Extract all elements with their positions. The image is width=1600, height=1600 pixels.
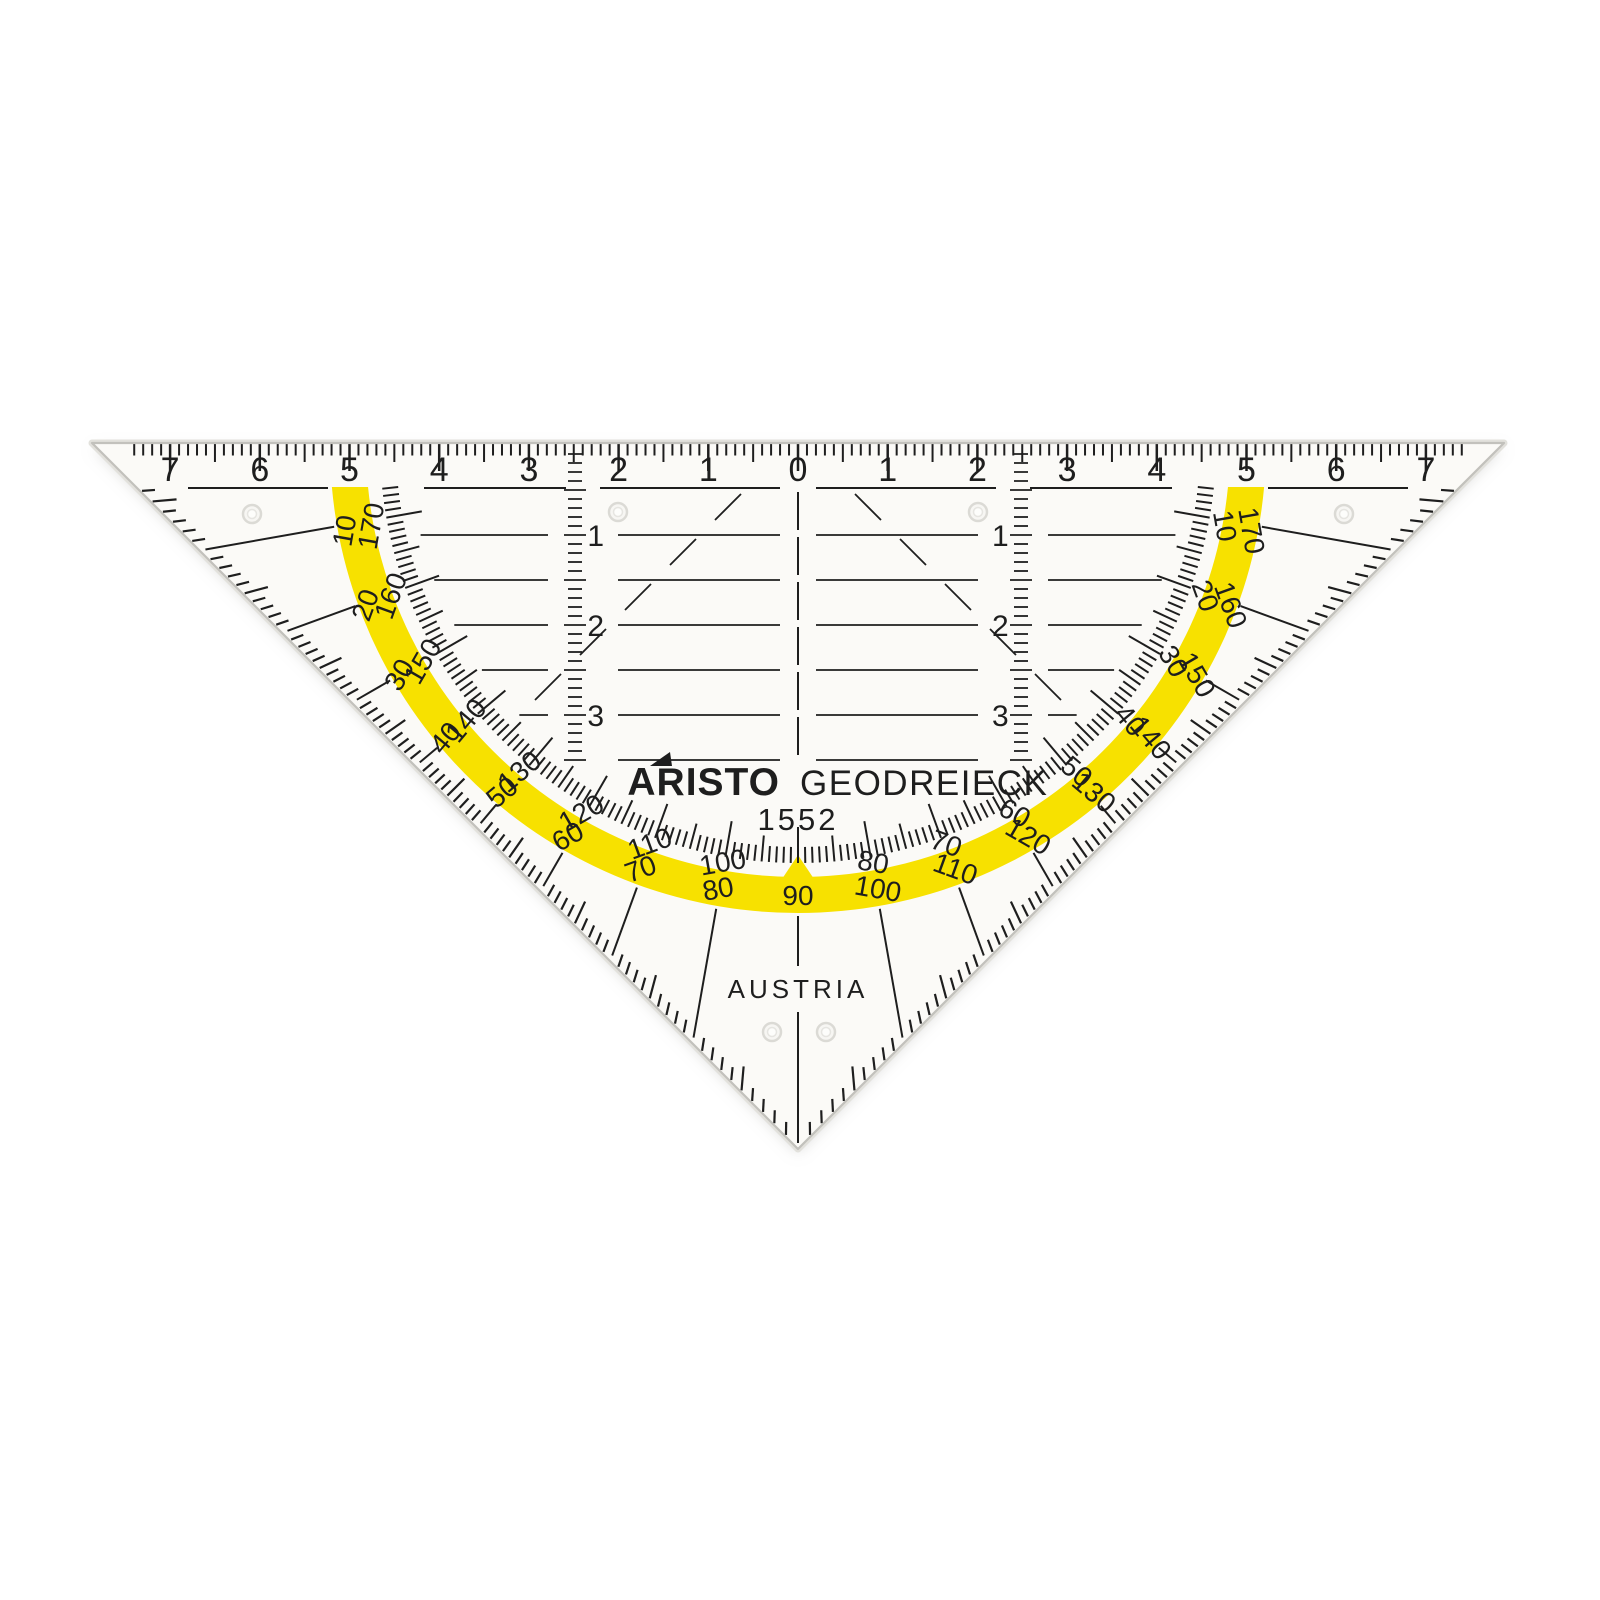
ruler-number: 5 — [1237, 451, 1256, 489]
grip-hole — [817, 1023, 835, 1041]
parallel-guide-label: 2 — [587, 610, 604, 643]
ruler-number: 4 — [1147, 451, 1166, 489]
edge-degree-slash — [763, 1099, 764, 1112]
grip-hole-inner — [822, 1028, 831, 1037]
grip-hole — [763, 1023, 781, 1041]
edge-degree-slash — [142, 490, 155, 491]
product-name-text: GEODREIECK — [800, 764, 1048, 803]
grip-hole — [969, 503, 987, 521]
protractor-ring-tick — [819, 846, 820, 862]
ruler-number: 2 — [968, 451, 987, 489]
grip-hole — [609, 503, 627, 521]
grip-hole-inner — [1340, 510, 1349, 519]
product-photo: 7654321012345671122331701601501401301201… — [0, 0, 1600, 1600]
protractor-ring-tick — [769, 846, 770, 862]
ruler-number: 4 — [430, 451, 449, 489]
geodreieck-set-square: 7654321012345671122331701601501401301201… — [0, 0, 1600, 1600]
edge-degree-slash — [832, 1099, 833, 1112]
ruler-number: 3 — [1058, 451, 1077, 489]
protractor-ring-tick — [783, 847, 784, 863]
brand-text: ARISTO — [627, 761, 780, 804]
ruler-number: 6 — [1327, 451, 1346, 489]
grip-hole-inner — [614, 508, 623, 517]
edge-degree-slash — [1420, 510, 1433, 511]
protractor-band-number: 80 — [700, 871, 736, 907]
ruler-number: 1 — [878, 451, 897, 489]
ruler-number: 3 — [519, 451, 538, 489]
protractor-ring-tick — [776, 846, 777, 862]
model-number-text: 1552 — [758, 802, 839, 837]
origin-text: AUSTRIA — [728, 974, 869, 1004]
edge-degree-slash — [752, 1088, 753, 1101]
edge-degree-slash — [863, 1067, 864, 1080]
parallel-guide-label: 3 — [587, 700, 604, 733]
grip-hole — [1335, 505, 1353, 523]
edge-degree-slash — [843, 1088, 844, 1101]
ruler-number: 7 — [161, 451, 180, 489]
ruler-number: 1 — [699, 451, 718, 489]
grip-hole — [243, 505, 261, 523]
ruler-number: 2 — [609, 451, 628, 489]
ruler-number: 7 — [1416, 451, 1435, 489]
ruler-number: 6 — [250, 451, 269, 489]
parallel-guide-label: 2 — [992, 610, 1009, 643]
grip-hole-inner — [248, 510, 257, 519]
edge-degree-slash — [731, 1067, 732, 1080]
parallel-guide-label: 3 — [992, 700, 1009, 733]
ruler-number: 5 — [340, 451, 359, 489]
edge-degree-slash — [1441, 490, 1454, 491]
protractor-ring-tick — [812, 847, 813, 863]
parallel-guide-label: 1 — [587, 520, 604, 553]
grip-hole-inner — [768, 1028, 777, 1037]
protractor-ring-tick — [826, 846, 827, 862]
edge-degree-slash — [163, 510, 176, 511]
protractor-band-number: 10 — [327, 513, 363, 549]
ruler-number: 0 — [789, 451, 808, 489]
parallel-guide-label: 1 — [992, 520, 1009, 553]
protractor-band-number: 90 — [782, 880, 813, 911]
grip-hole-inner — [974, 508, 983, 517]
